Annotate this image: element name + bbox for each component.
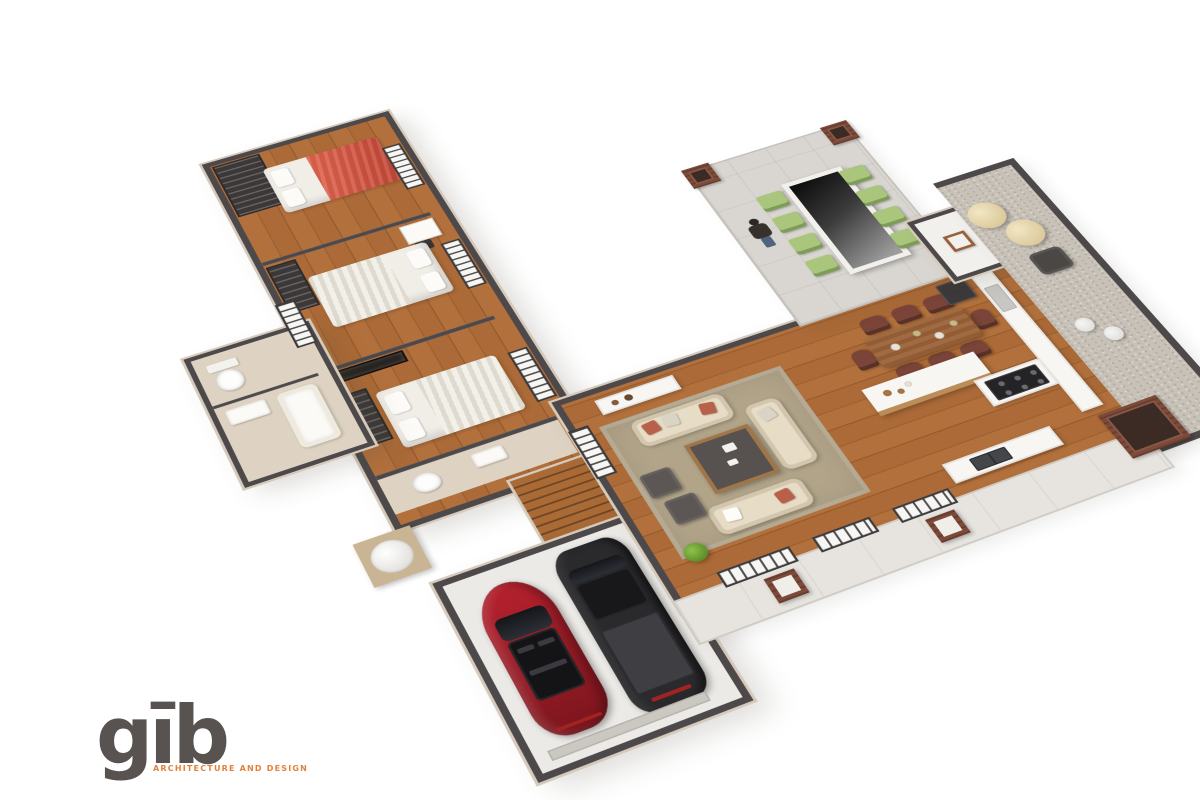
brick-pillar-porch [925,509,971,543]
floorplan-3d-plane [0,0,1200,800]
green-deck-chair [787,232,824,255]
decor-item [623,393,635,401]
green-deck-chair [771,211,807,234]
bathtub [275,382,343,449]
white-cylinder-stool [1071,316,1098,334]
throw-pillow [722,507,743,523]
toilet [409,469,445,495]
plate [911,329,923,337]
pillar-cap [772,575,801,597]
pillow [280,187,307,208]
pillow [419,270,447,293]
pillow [269,167,295,188]
cream-pouf [999,215,1053,250]
pillar-cap [827,124,853,141]
coffee-table-item [721,442,738,453]
throw-pillow [698,401,718,415]
rendering-canvas: gīb ARCHITECTURE AND DESIGN [0,0,1200,800]
bowl [903,381,913,388]
pillow [383,390,412,415]
decor-item [610,399,620,406]
car-seat [529,658,568,676]
decor-frame [942,230,976,252]
pillow [405,247,433,269]
logo-wordmark: gīb [96,698,356,774]
floorplan-scene [15,0,1200,790]
pillar-cap [688,167,714,184]
pillow [397,416,427,442]
bowl [881,389,893,397]
car-seat [537,636,556,646]
white-cylinder-stool [1100,324,1128,342]
plate [948,319,960,327]
coffee-table-item [727,458,740,466]
round-basin [364,534,420,578]
firm-logo: gīb ARCHITECTURE AND DESIGN [96,698,356,773]
throw-pillow [660,413,681,428]
brick-pillar-deck-nw [681,163,722,189]
brick-pillar-porch [763,568,809,603]
bowl [896,388,906,395]
truck-bed-cover [599,610,696,696]
throw-pillow [640,420,662,436]
white-blanket [416,355,527,435]
plate [933,331,947,340]
person-legs [760,236,777,248]
sink-divider [987,453,997,464]
utility-cabinet [352,525,432,588]
car-seat [517,644,536,654]
plate [889,342,903,351]
brick-pillar-deck-ne [820,120,860,145]
green-deck-chair [804,254,841,278]
bed-bedroom2-white [307,241,455,328]
pillar-cap [933,515,962,536]
bathroom-sink [470,445,509,468]
taillight-bar [555,712,603,732]
green-deck-chair [755,190,791,212]
logo-tagline: ARCHITECTURE AND DESIGN [153,764,356,773]
white-blanket [307,254,412,328]
throw-pillow [756,406,779,422]
throw-pillow [773,487,796,504]
dark-armchair [1027,245,1076,276]
